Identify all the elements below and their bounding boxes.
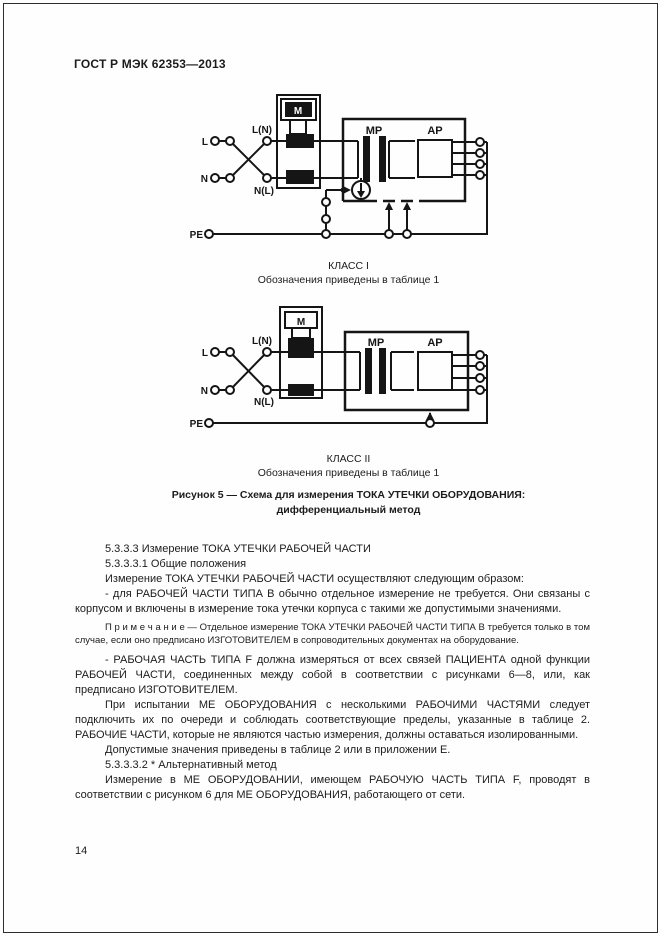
list-item: - для РАБОЧЕЙ ЧАСТИ ТИПА В обычно отдель…	[75, 587, 590, 617]
transformer-winding	[379, 348, 386, 394]
label-mp: МР	[366, 125, 383, 137]
label-neutral: N	[201, 174, 208, 185]
up-arrow-icon	[385, 202, 393, 210]
junction-dot	[341, 188, 346, 193]
paragraph: Измерение в МЕ ОБОРУДОВАНИИ, имеющем РАБ…	[75, 773, 590, 803]
label-nl: N(L)	[254, 397, 274, 408]
impedance-block-line	[286, 134, 314, 148]
caption-class1: КЛАСС I Обозначения приведены в таблице …	[36, 259, 661, 287]
meter-stem	[292, 328, 310, 338]
label-ln: L(N)	[252, 125, 272, 136]
diagram-class1: M L N PE L(N) N(L) МР АР	[180, 88, 510, 256]
impedance-block-neutral	[288, 384, 314, 396]
list-item: - РАБОЧАЯ ЧАСТЬ ТИПА F должна измеряться…	[75, 653, 590, 698]
document-page: ГОСТ Р МЭК 62353—2013 M	[0, 0, 661, 936]
class1-note: Обозначения приведены в таблице 1	[36, 273, 661, 287]
caption-class2: КЛАСС II Обозначения приведены в таблице…	[36, 452, 661, 480]
class2-label: КЛАСС II	[36, 452, 661, 466]
applied-part-box	[418, 352, 452, 390]
label-mp: МР	[368, 337, 385, 349]
label-nl: N(L)	[254, 186, 274, 197]
transformer-winding	[365, 348, 372, 394]
meter-label: M	[297, 317, 305, 328]
class2-note: Обозначения приведены в таблице 1	[36, 466, 661, 480]
transformer-winding	[363, 136, 370, 182]
label-ap: АР	[427, 125, 442, 137]
label-pe: PE	[190, 230, 204, 241]
up-arrow-icon	[403, 202, 411, 210]
subsection-heading: 5.3.3.3.2 * Альтернативный метод	[75, 758, 590, 773]
transformer-winding	[379, 136, 386, 182]
note-paragraph: П р и м е ч а н и е — Отдельное измерени…	[75, 622, 590, 647]
label-pe: PE	[190, 419, 204, 430]
class1-label: КЛАСС I	[36, 259, 661, 273]
paragraph: При испытании МЕ ОБОРУДОВАНИЯ с нескольк…	[75, 698, 590, 743]
subsection-heading: 5.3.3.3.1 Общие положения	[75, 557, 590, 572]
page-header: ГОСТ Р МЭК 62353—2013	[74, 57, 226, 71]
label-neutral: N	[201, 386, 208, 397]
figure-caption: Рисунок 5 — Схема для измерения ТОКА УТЕ…	[36, 488, 661, 518]
section-heading: 5.3.3.3 Измерение ТОКА УТЕЧКИ РАБОЧЕЙ ЧА…	[75, 542, 590, 557]
meter-label: M	[294, 106, 302, 117]
label-ap: АР	[427, 337, 442, 349]
body-text: 5.3.3.3 Измерение ТОКА УТЕЧКИ РАБОЧЕЙ ЧА…	[75, 542, 590, 803]
label-line: L	[202, 348, 208, 359]
figure-caption-line2: дифференциальный метод	[36, 503, 661, 518]
paragraph: Допустимые значения приведены в таблице …	[75, 743, 590, 758]
page-number: 14	[75, 845, 87, 857]
impedance-block-neutral	[286, 170, 314, 184]
figure-caption-line1: Рисунок 5 — Схема для измерения ТОКА УТЕ…	[36, 488, 661, 503]
paragraph: Измерение ТОКА УТЕЧКИ РАБОЧЕЙ ЧАСТИ осущ…	[75, 572, 590, 587]
diagram-class2: M L N PE L(N) N(L) МР АР	[180, 300, 510, 450]
meter-stem	[290, 120, 306, 134]
impedance-block-line	[288, 338, 314, 358]
label-ln: L(N)	[252, 336, 272, 347]
label-line: L	[202, 137, 208, 148]
applied-part-box	[418, 140, 452, 177]
